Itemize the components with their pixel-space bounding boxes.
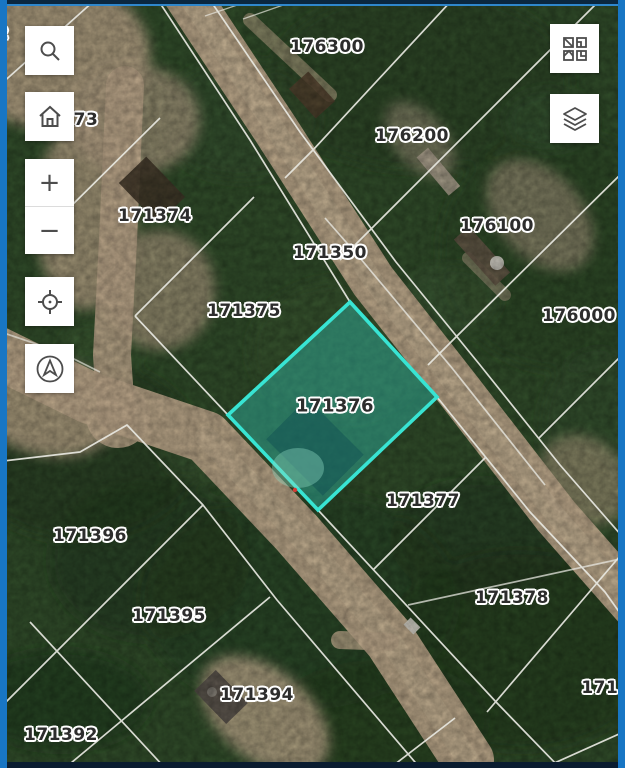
vertex-marker [293, 488, 297, 492]
layers-icon [560, 104, 590, 134]
search-icon [38, 39, 62, 63]
home-button[interactable] [25, 92, 74, 141]
compass-button[interactable] [25, 344, 74, 393]
frame-border-right [618, 0, 625, 768]
zoom-out-button[interactable]: − [25, 207, 74, 254]
basemap-gallery-button[interactable] [550, 24, 599, 73]
zoom-in-button[interactable]: + [25, 159, 74, 206]
search-button[interactable] [25, 26, 74, 75]
compass-icon [35, 354, 65, 384]
frame-border-left [0, 0, 7, 768]
locate-button[interactable] [25, 277, 74, 326]
map-viewer-frame: 2731763001762001761001760001713741713501… [0, 0, 625, 768]
layers-button[interactable] [550, 94, 599, 143]
zoom-controls: + − [25, 159, 74, 254]
frame-border-bottom [0, 762, 625, 768]
basemap-gallery-icon [561, 35, 589, 63]
home-icon [37, 104, 63, 130]
map-canvas[interactable]: 2731763001762001761001760001713741713501… [0, 0, 625, 768]
locate-icon [36, 288, 64, 316]
frame-border-top-accent [0, 4, 625, 6]
aerial-imagery [0, 0, 625, 768]
